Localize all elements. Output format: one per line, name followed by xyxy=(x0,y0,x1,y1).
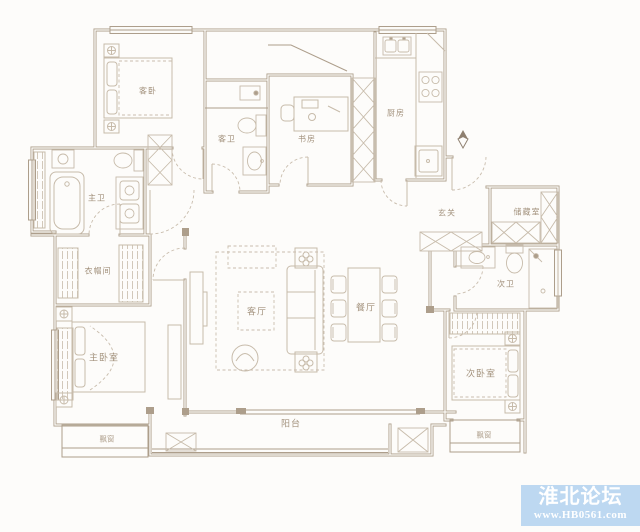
room-label-balcony: 阳台 xyxy=(281,417,301,430)
room-label-second-bedroom: 次卧室 xyxy=(466,367,496,380)
room-label-study: 书房 xyxy=(298,134,316,145)
floor-plan-page: 客卧 客卫 书房 厨房 主卫 衣帽间 客厅 餐厅 玄关 储藏室 次卫 主卧室 次… xyxy=(0,0,640,532)
room-label-living-room: 客厅 xyxy=(247,305,267,318)
kitchen-sink xyxy=(383,37,411,55)
guest-bed xyxy=(104,44,172,133)
desk xyxy=(281,97,348,131)
watermark-site-url: www.HB0561.com xyxy=(521,508,640,523)
sofa xyxy=(287,248,323,372)
guest-bath-fixtures xyxy=(238,86,266,175)
room-label-storage: 储藏室 xyxy=(514,207,541,218)
shower xyxy=(529,249,558,308)
room-label-cloakroom: 衣帽间 xyxy=(85,266,112,277)
room-label-bay-window-left: 飘窗 xyxy=(100,434,115,445)
room-label-second-bath: 次卫 xyxy=(497,279,515,290)
pillars xyxy=(146,228,434,415)
tv-cabinet xyxy=(190,272,207,344)
master-bath-fixtures xyxy=(52,150,143,229)
round-chair xyxy=(232,345,258,371)
room-label-master-bedroom: 主卧室 xyxy=(89,351,119,364)
room-label-guest-bedroom: 客卧 xyxy=(139,86,157,97)
stove xyxy=(419,72,442,102)
second-bath-fixtures xyxy=(461,245,558,308)
sideboard xyxy=(228,246,276,268)
room-label-bay-window-right: 飘窗 xyxy=(477,430,492,441)
bathtub xyxy=(50,172,84,234)
room-label-master-bath: 主卫 xyxy=(88,193,106,204)
watermark: 淮北论坛 www.HB0561.com xyxy=(521,485,640,526)
room-label-guest-bath: 客卫 xyxy=(218,134,236,145)
room-label-kitchen: 厨房 xyxy=(387,108,405,119)
compass-icon xyxy=(453,127,473,151)
room-label-dining-room: 餐厅 xyxy=(356,301,376,314)
room-label-foyer: 玄关 xyxy=(438,208,456,219)
fridge xyxy=(415,146,442,176)
watermark-site-name: 淮北论坛 xyxy=(521,485,640,508)
shoe-cabinet xyxy=(420,232,482,251)
